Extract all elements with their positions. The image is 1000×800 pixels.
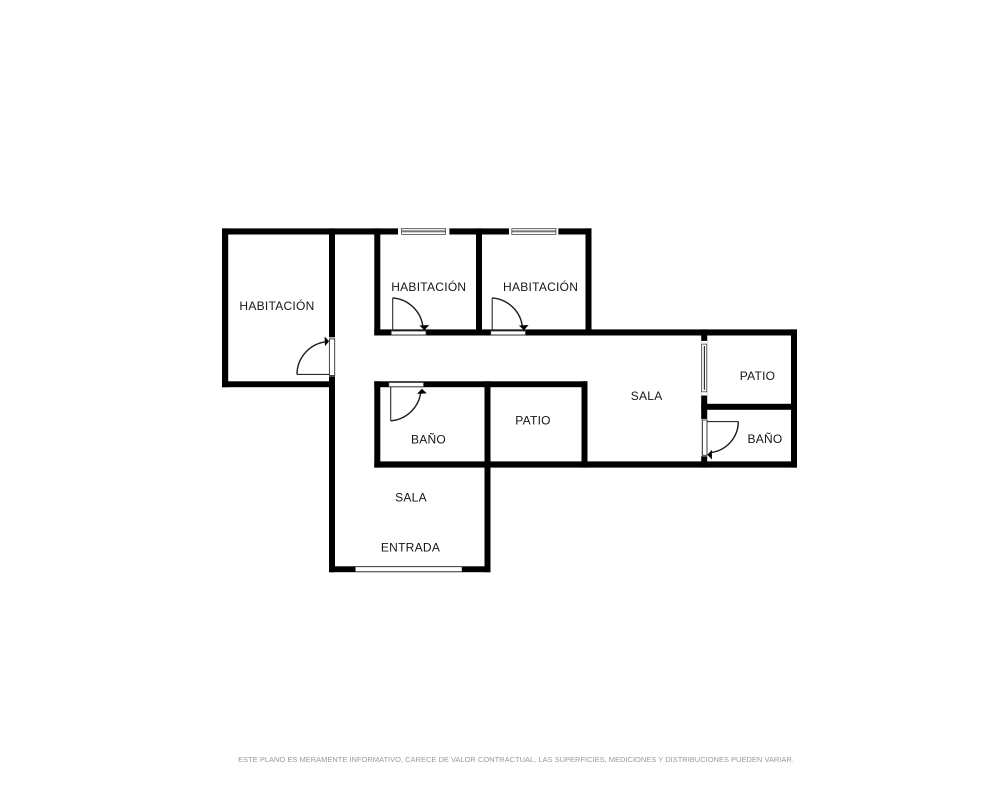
svg-text:HABITACIÓN: HABITACIÓN <box>391 279 466 294</box>
svg-text:HABITACIÓN: HABITACIÓN <box>239 298 314 313</box>
svg-text:BAÑO: BAÑO <box>747 432 782 446</box>
svg-text:PATIO: PATIO <box>515 413 551 427</box>
svg-text:SALA: SALA <box>395 490 427 504</box>
svg-text:HABITACIÓN: HABITACIÓN <box>503 279 578 294</box>
svg-text:ESTE PLANO ES MERAMENTE INFORM: ESTE PLANO ES MERAMENTE INFORMATIVO, CAR… <box>238 755 794 764</box>
svg-text:PATIO: PATIO <box>740 369 776 383</box>
svg-text:ENTRADA: ENTRADA <box>381 541 440 555</box>
svg-text:BAÑO: BAÑO <box>411 432 446 446</box>
svg-text:SALA: SALA <box>631 389 663 403</box>
